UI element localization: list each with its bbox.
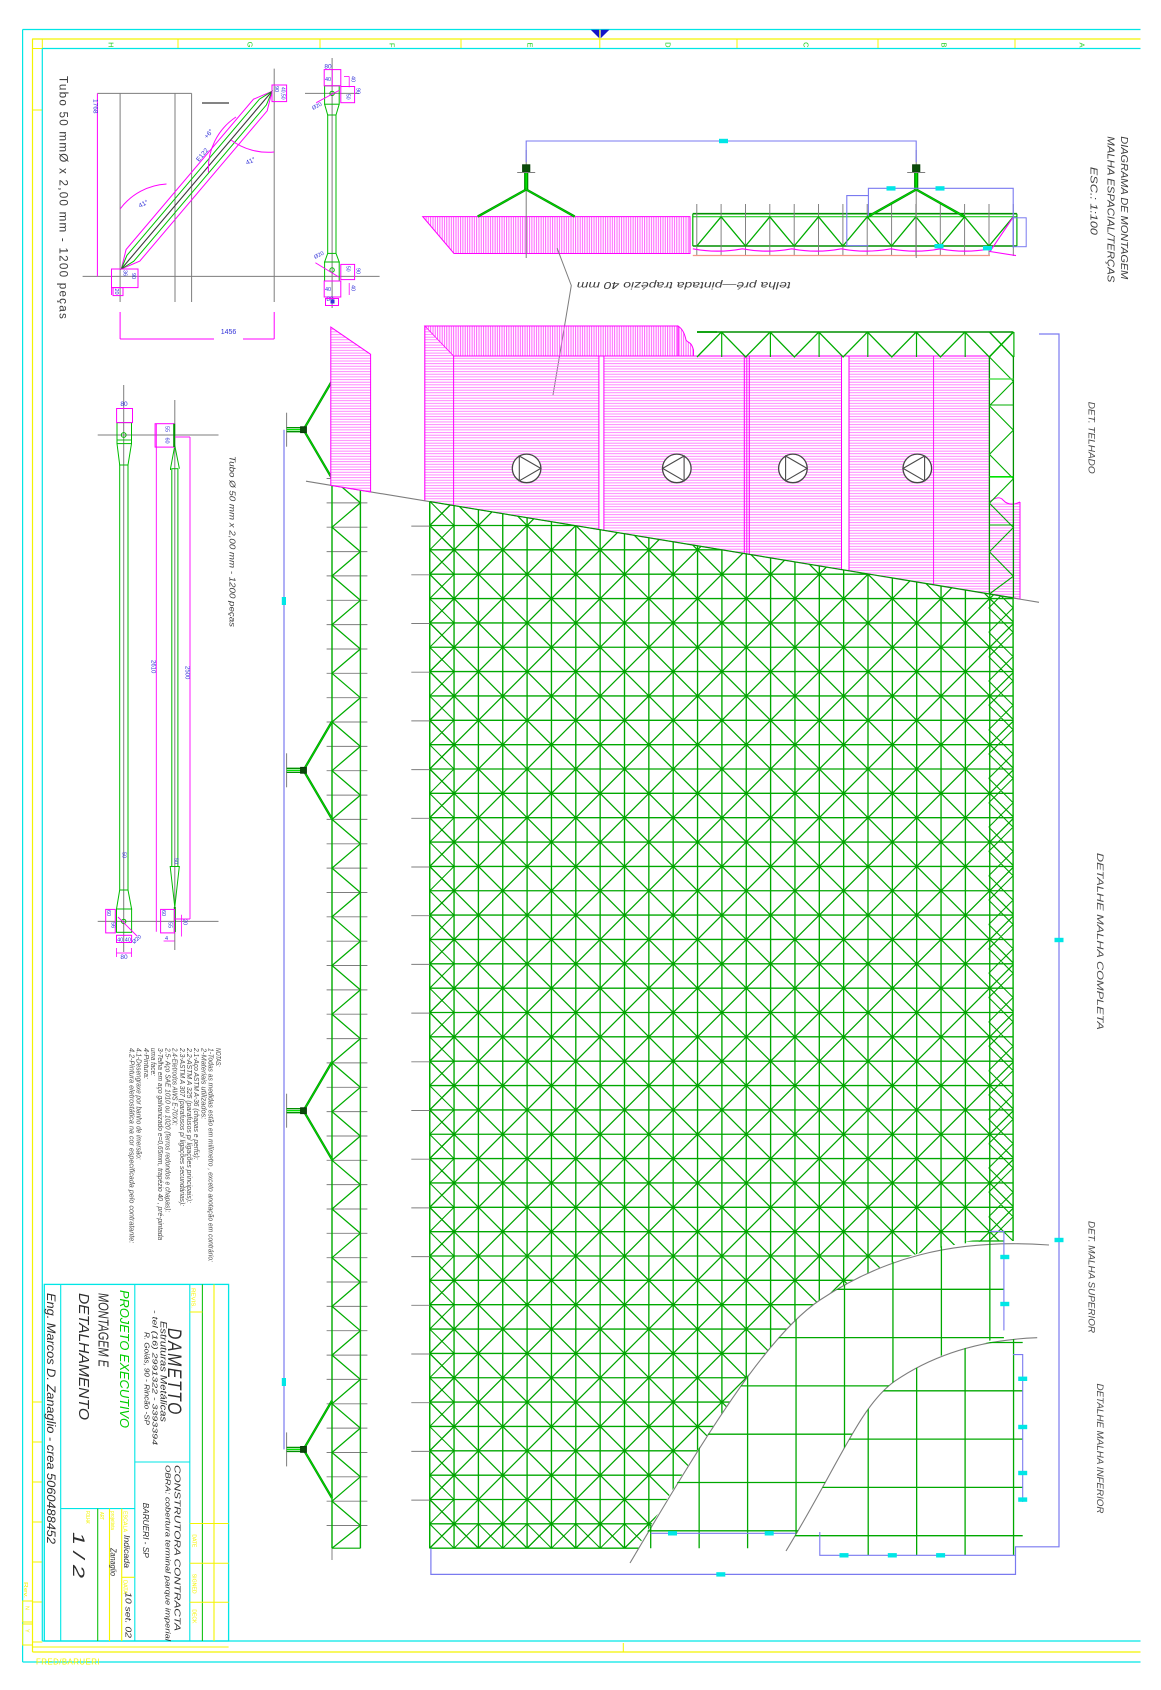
svg-text:G: G bbox=[245, 42, 254, 48]
svg-text:FOLHA': FOLHA' bbox=[84, 1511, 90, 1524]
svg-text:40,50: 40,50 bbox=[280, 87, 286, 100]
svg-text:OBRA: cobertura terminal parqu: OBRA: cobertura terminal parque imperial bbox=[163, 1465, 172, 1641]
svg-text:40: 40 bbox=[350, 285, 356, 291]
svg-text:56: 56 bbox=[110, 922, 116, 928]
svg-text:Ø20: Ø20 bbox=[313, 251, 325, 261]
svg-text:41°: 41° bbox=[137, 198, 150, 210]
svg-text:90: 90 bbox=[355, 268, 361, 274]
svg-text:40: 40 bbox=[325, 77, 331, 83]
svg-text:DECK: DECK bbox=[191, 1609, 197, 1624]
svg-text:20: 20 bbox=[113, 289, 119, 295]
svg-text:DETALHE MALHA COMPLETA: DETALHE MALHA COMPLETA bbox=[1095, 853, 1105, 1030]
svg-text:E122: E122 bbox=[195, 147, 210, 163]
svg-text:55: 55 bbox=[167, 922, 173, 928]
svg-text:1768: 1768 bbox=[92, 99, 99, 114]
svg-text:1 / 2: 1 / 2 bbox=[69, 1532, 88, 1579]
svg-text:10 set. 02: 10 set. 02 bbox=[124, 1592, 133, 1639]
svg-text:projetista: projetista bbox=[109, 1511, 115, 1530]
svg-text:B: B bbox=[939, 42, 948, 47]
svg-text:ART: ART bbox=[98, 1512, 104, 1521]
svg-text:60: 60 bbox=[160, 910, 166, 916]
svg-text:60: 60 bbox=[105, 910, 111, 916]
svg-text:Zanaglio: Zanaglio bbox=[109, 1547, 118, 1576]
svg-text:Tubo Ø 50 mm x 2,00 mm - 1200: Tubo Ø 50 mm x 2,00 mm - 1200 peças bbox=[228, 456, 238, 628]
svg-text:A: A bbox=[1077, 42, 1086, 47]
svg-text:DETALHAMENTO: DETALHAMENTO bbox=[75, 1293, 91, 1420]
svg-text:DETALHE MALHA INFERIOR: DETALHE MALHA INFERIOR bbox=[1095, 1384, 1105, 1515]
svg-text:D: D bbox=[663, 42, 672, 48]
svg-text:N: N bbox=[24, 1606, 30, 1610]
svg-text:PROJETO EXECUTIVO: PROJETO EXECUTIVO bbox=[117, 1290, 131, 1428]
svg-text:3-Telha em aço galvanizado e=0: 3-Telha em aço galvanizado e=0,65mm, tra… bbox=[156, 1048, 165, 1240]
svg-text:Tubo 50 mmØ x 2,00 mm - 1200 p: Tubo 50 mmØ x 2,00 mm - 1200 peças bbox=[56, 76, 68, 320]
svg-text:telha pré—pintada trapézio 40: telha pré—pintada trapézio 40 mm bbox=[577, 279, 791, 290]
svg-text:20: 20 bbox=[182, 919, 188, 925]
svg-text:MONTAGEM E: MONTAGEM E bbox=[95, 1293, 111, 1367]
svg-text:SIGNED: SIGNED bbox=[191, 1574, 197, 1594]
svg-text:2610: 2610 bbox=[150, 660, 156, 674]
svg-text:80: 80 bbox=[120, 954, 128, 961]
svg-text:FRED/BARUERI: FRED/BARUERI bbox=[36, 1657, 100, 1667]
svg-text:40: 40 bbox=[325, 287, 331, 293]
svg-text:DET. TELHADO: DET. TELHADO bbox=[1087, 402, 1097, 474]
svg-text:80: 80 bbox=[120, 401, 128, 408]
svg-text:Ø20: Ø20 bbox=[311, 102, 323, 112]
svg-text:60: 60 bbox=[163, 438, 169, 444]
svg-text:Indicada: Indicada bbox=[122, 1535, 131, 1569]
svg-text:41°: 41° bbox=[244, 155, 257, 167]
svg-text:ESC.: 1:100: ESC.: 1:100 bbox=[1088, 167, 1100, 235]
svg-text:MALHA ESPACIAL/TERÇAS: MALHA ESPACIAL/TERÇAS bbox=[1105, 136, 1117, 282]
svg-text:50: 50 bbox=[120, 852, 126, 858]
svg-text:H: H bbox=[106, 42, 115, 47]
svg-text:R. Goiás, 90 - Rincão -SP: R. Goiás, 90 - Rincão -SP bbox=[142, 1332, 151, 1425]
svg-text:Eng. Marcos D. Zanaglio - crea: Eng. Marcos D. Zanaglio - crea 506048845… bbox=[44, 1293, 58, 1544]
svg-text:2500: 2500 bbox=[183, 666, 189, 680]
svg-text:C: C bbox=[801, 42, 810, 48]
svg-text:50: 50 bbox=[345, 94, 351, 100]
svg-text:55: 55 bbox=[163, 426, 169, 432]
svg-text:90: 90 bbox=[273, 86, 279, 92]
svg-text:Ø20: Ø20 bbox=[131, 934, 143, 945]
svg-text:REVIS.: REVIS. bbox=[190, 1288, 196, 1308]
svg-text:Rev.: Rev. bbox=[22, 1582, 28, 1599]
svg-text:90: 90 bbox=[355, 88, 361, 94]
svg-text:+6°: +6° bbox=[202, 127, 215, 140]
svg-text:40 40: 40 40 bbox=[117, 938, 131, 944]
svg-text:CONSTRUTORA CONTRACTA: CONSTRUTORA CONTRACTA bbox=[173, 1465, 183, 1631]
svg-text:BARUERI - SP: BARUERI - SP bbox=[141, 1503, 151, 1558]
svg-text:1456: 1456 bbox=[221, 329, 237, 336]
svg-text:DET. MALHA SUPERIOR: DET. MALHA SUPERIOR bbox=[1087, 1221, 1097, 1334]
svg-text:4.2-Pintura eletrostática na c: 4.2-Pintura eletrostática na cor especif… bbox=[127, 1048, 136, 1243]
svg-text:E: E bbox=[525, 42, 534, 47]
svg-text:Y: Y bbox=[24, 1629, 30, 1633]
svg-text:90: 90 bbox=[130, 273, 136, 279]
svg-text:36: 36 bbox=[122, 270, 128, 276]
svg-text:50: 50 bbox=[345, 266, 351, 272]
svg-text:50: 50 bbox=[172, 858, 178, 864]
svg-text:4: 4 bbox=[165, 936, 168, 942]
svg-text:DIAGRAMA DE MONTAGEM: DIAGRAMA DE MONTAGEM bbox=[1118, 136, 1130, 279]
svg-text:F: F bbox=[387, 43, 396, 48]
svg-text:40: 40 bbox=[350, 76, 356, 82]
svg-text:DATE: DATE bbox=[191, 1534, 197, 1548]
svg-text:ESCALA: ESCALA bbox=[122, 1511, 128, 1533]
